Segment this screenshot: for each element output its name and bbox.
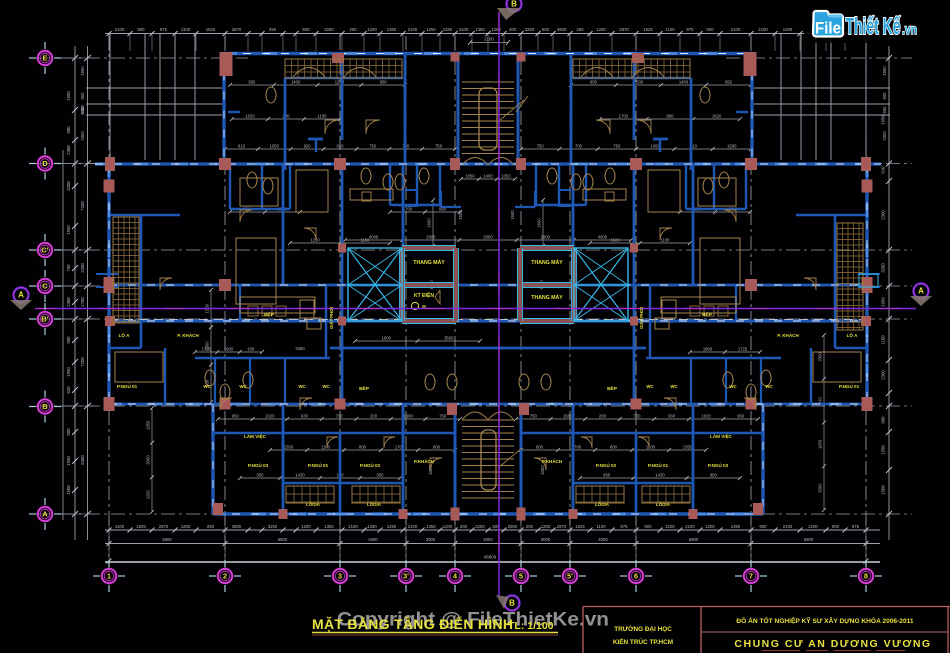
svg-text:800: 800 [359, 445, 367, 450]
svg-text:6800: 6800 [278, 537, 288, 542]
svg-text:200: 200 [599, 414, 607, 419]
svg-text:2800: 2800 [232, 524, 242, 529]
svg-text:LÔGIA: LÔGIA [367, 502, 382, 507]
svg-text:P.NGỦ 02: P.NGỦ 02 [596, 462, 617, 468]
svg-text:920: 920 [304, 144, 312, 149]
svg-text:LÔ A: LÔ A [847, 331, 858, 338]
svg-text:2870: 2870 [619, 27, 629, 32]
svg-text:2100: 2100 [408, 27, 418, 32]
svg-text:1950: 1950 [881, 115, 886, 125]
svg-text:1950: 1950 [66, 456, 71, 466]
svg-text:WC: WC [322, 384, 330, 389]
svg-text:1020: 1020 [265, 414, 275, 419]
svg-text:900: 900 [644, 524, 652, 529]
svg-text:3250: 3250 [525, 27, 535, 32]
svg-text:750: 750 [66, 264, 71, 272]
svg-text:3200: 3200 [881, 263, 886, 273]
svg-text:1350: 1350 [284, 445, 294, 450]
svg-text:1100: 1100 [660, 238, 670, 243]
svg-text:Thiết Kế: Thiết Kế [846, 13, 901, 39]
svg-text:3300: 3300 [540, 465, 545, 475]
svg-text:3250: 3250 [324, 27, 334, 32]
svg-text:3200: 3200 [66, 181, 71, 191]
svg-text:1400: 1400 [679, 80, 689, 85]
svg-text:1950: 1950 [66, 367, 71, 377]
svg-text:1100: 1100 [321, 445, 331, 450]
svg-text:950: 950 [603, 473, 611, 478]
svg-text:LÀM VIỆC: LÀM VIỆC [710, 432, 733, 439]
svg-text:1500: 1500 [727, 144, 737, 149]
svg-text:1950: 1950 [80, 66, 85, 76]
svg-text:2100: 2100 [459, 27, 469, 32]
svg-text:LÔGIA: LÔGIA [306, 502, 321, 507]
svg-text:2100: 2100 [665, 524, 675, 529]
svg-text:GIẶT PHƠI: GIẶT PHƠI [639, 307, 644, 329]
svg-text:950: 950 [232, 414, 240, 419]
svg-text:1620: 1620 [245, 114, 255, 119]
svg-text:1200: 1200 [705, 524, 715, 529]
svg-text:1100: 1100 [181, 27, 191, 32]
svg-text:1500: 1500 [881, 485, 886, 495]
svg-text:1430: 1430 [295, 473, 305, 478]
svg-text:KT ĐIỆN: KT ĐIỆN [414, 291, 434, 299]
svg-text:900: 900 [66, 126, 71, 134]
svg-text:1625: 1625 [575, 524, 585, 529]
svg-text:2100: 2100 [783, 524, 793, 529]
svg-text:WC: WC [298, 384, 306, 389]
svg-text:610: 610 [337, 144, 345, 149]
svg-text:B': B' [41, 315, 48, 324]
svg-text:1200: 1200 [596, 27, 606, 32]
svg-text:WC: WC [765, 384, 773, 389]
svg-text:1350: 1350 [683, 445, 693, 450]
svg-text:THANG MÁY: THANG MÁY [531, 294, 563, 301]
svg-text:6800: 6800 [804, 537, 814, 542]
svg-text:1350: 1350 [426, 524, 436, 529]
svg-text:2300: 2300 [882, 131, 887, 141]
svg-text:2870: 2870 [232, 27, 242, 32]
svg-text:1250: 1250 [310, 238, 320, 243]
svg-text:WC: WC [203, 384, 211, 389]
svg-text:4000: 4000 [483, 537, 493, 542]
svg-text:1625: 1625 [136, 524, 146, 529]
svg-text:WC: WC [670, 384, 678, 389]
svg-text:.vn: .vn [902, 21, 917, 37]
svg-text:750: 750 [537, 144, 545, 149]
svg-text:1050: 1050 [465, 174, 475, 179]
svg-text:950: 950 [590, 80, 598, 85]
svg-text:P.KHÁCH: P.KHÁCH [542, 458, 563, 464]
svg-text:900: 900 [80, 92, 85, 100]
svg-text:A: A [42, 510, 48, 519]
svg-text:700: 700 [336, 414, 344, 419]
svg-text:930: 930 [301, 414, 309, 419]
svg-text:2100: 2100 [115, 27, 125, 32]
svg-text:900: 900 [66, 336, 71, 344]
svg-text:1250: 1250 [426, 27, 436, 32]
svg-text:800: 800 [536, 445, 544, 450]
svg-text:P.NGỦ 01: P.NGỦ 01 [308, 462, 329, 468]
svg-text:3250: 3250 [268, 524, 278, 529]
svg-text:1950: 1950 [146, 420, 151, 430]
svg-text:P.NGỦ 01: P.NGỦ 01 [648, 462, 669, 468]
svg-text:P.NGỦ 02: P.NGỦ 02 [360, 462, 381, 468]
svg-text:1150: 1150 [146, 489, 151, 499]
svg-text:WC: WC [646, 384, 654, 389]
svg-text:B: B [511, 0, 517, 9]
svg-text:2100: 2100 [731, 27, 741, 32]
svg-text:3300: 3300 [818, 483, 823, 493]
svg-text:BẾP: BẾP [607, 385, 618, 392]
svg-text:1350: 1350 [731, 524, 741, 529]
svg-text:LÀM VIỆC: LÀM VIỆC [244, 432, 267, 439]
svg-text:WC: WC [239, 384, 247, 389]
svg-text:6400: 6400 [80, 455, 85, 465]
svg-text:WC: WC [729, 384, 737, 389]
svg-text:1625: 1625 [206, 27, 216, 32]
svg-text:1000: 1000 [382, 336, 392, 341]
svg-text:6800: 6800 [162, 537, 172, 542]
svg-text:100: 100 [247, 347, 255, 352]
svg-text:1950: 1950 [818, 439, 823, 449]
svg-text:3': 3' [403, 572, 409, 581]
svg-text:900: 900 [881, 416, 886, 424]
svg-text:1100: 1100 [115, 524, 125, 529]
svg-text:D: D [42, 159, 48, 168]
svg-text:A: A [18, 291, 24, 300]
svg-text:910: 910 [881, 166, 886, 174]
svg-text:1950: 1950 [66, 91, 71, 101]
svg-text:1620: 1620 [712, 114, 722, 119]
svg-text:1200: 1200 [783, 27, 793, 32]
svg-text:1250: 1250 [387, 524, 397, 529]
svg-text:750: 750 [369, 144, 377, 149]
svg-text:2300: 2300 [881, 370, 886, 380]
svg-text:975: 975 [160, 27, 168, 32]
svg-text:1600: 1600 [458, 210, 463, 220]
svg-text:BẾP: BẾP [702, 311, 713, 318]
svg-text:CHUNG CƯ AN DƯƠNG VƯƠNG: CHUNG CƯ AN DƯƠNG VƯƠNG [734, 638, 931, 650]
svg-text:500: 500 [542, 27, 550, 32]
svg-text:800: 800 [610, 445, 618, 450]
svg-text:2: 2 [223, 572, 227, 581]
svg-text:6400: 6400 [80, 105, 85, 115]
svg-text:3450: 3450 [295, 346, 305, 351]
svg-text:500: 500 [302, 27, 310, 32]
svg-text:900: 900 [137, 27, 145, 32]
svg-text:1900: 1900 [703, 347, 713, 352]
svg-text:910: 910 [238, 144, 246, 149]
svg-text:MẶT BẰNG TẦNG ĐIỂN HÌNH: MẶT BẰNG TẦNG ĐIỂN HÌNH [312, 615, 513, 632]
svg-text:975: 975 [852, 524, 860, 529]
svg-text:4000: 4000 [369, 235, 379, 240]
svg-text:200: 200 [349, 27, 357, 32]
svg-text:1100: 1100 [596, 524, 606, 529]
svg-text:975: 975 [620, 524, 628, 529]
svg-text:4000: 4000 [598, 235, 608, 240]
svg-text:1050: 1050 [501, 174, 511, 179]
svg-text:P. KHÁCH: P. KHÁCH [777, 332, 799, 338]
svg-text:2100: 2100 [484, 37, 494, 42]
svg-text:2100: 2100 [348, 524, 358, 529]
svg-text:1625: 1625 [643, 27, 653, 32]
svg-text:900: 900 [706, 27, 714, 32]
svg-text:200: 200 [370, 414, 378, 419]
svg-text:LÔGIA: LÔGIA [595, 502, 610, 507]
svg-text:P.NGỦ 03: P.NGỦ 03 [248, 462, 269, 468]
svg-text:1050: 1050 [270, 144, 280, 149]
svg-text:800: 800 [433, 445, 441, 450]
svg-text:4000: 4000 [598, 537, 608, 542]
svg-text:1350: 1350 [475, 27, 485, 32]
svg-text:800: 800 [667, 114, 675, 119]
svg-text:5: 5 [519, 572, 523, 581]
svg-text:P.KHÁCH: P.KHÁCH [414, 458, 435, 464]
svg-text:2100: 2100 [408, 524, 418, 529]
svg-text:750: 750 [530, 414, 538, 419]
svg-text:C': C' [41, 246, 48, 255]
svg-text:1100: 1100 [317, 114, 327, 119]
svg-text:975: 975 [686, 27, 694, 32]
svg-text:LÔ A: LÔ A [119, 331, 130, 338]
svg-text:File: File [815, 19, 841, 38]
svg-text:1350: 1350 [387, 27, 397, 32]
svg-text:250: 250 [526, 524, 534, 529]
svg-text:2100: 2100 [685, 524, 695, 529]
svg-text:1250: 1250 [443, 27, 453, 32]
svg-text:2000: 2000 [483, 235, 493, 240]
svg-text:1250: 1250 [367, 524, 377, 529]
svg-text:1100: 1100 [646, 445, 656, 450]
svg-text:2800: 2800 [426, 235, 436, 240]
svg-text:5': 5' [567, 572, 573, 581]
svg-text:6800: 6800 [689, 537, 699, 542]
svg-text:E: E [42, 54, 47, 63]
svg-text:BẾP: BẾP [359, 385, 370, 392]
svg-text:C: C [42, 282, 48, 291]
svg-text:8: 8 [864, 572, 868, 581]
svg-text:650: 650 [882, 106, 887, 114]
svg-text:1200: 1200 [491, 27, 501, 32]
svg-text:3000: 3000 [541, 537, 551, 542]
svg-text:2100: 2100 [808, 524, 818, 529]
svg-text:950: 950 [257, 473, 265, 478]
svg-text:900: 900 [882, 92, 887, 100]
svg-text:1020: 1020 [701, 414, 711, 419]
svg-text:1600: 1600 [427, 218, 432, 228]
svg-text:930: 930 [668, 414, 676, 419]
svg-text:1950: 1950 [66, 225, 71, 235]
svg-text:1900: 1900 [224, 347, 234, 352]
svg-text:THANG MÁY: THANG MÁY [413, 259, 445, 266]
svg-text:950: 950 [377, 473, 385, 478]
svg-text:2300: 2300 [881, 210, 886, 220]
svg-text:7200: 7200 [80, 357, 85, 367]
svg-text:2200: 2200 [80, 263, 85, 273]
svg-text:750: 750 [439, 414, 447, 419]
svg-text:1200: 1200 [301, 524, 311, 529]
svg-text:700: 700 [634, 414, 642, 419]
svg-text:950: 950 [737, 414, 745, 419]
svg-text:3000: 3000 [146, 455, 151, 465]
svg-text:950: 950 [380, 80, 388, 85]
svg-text:1430: 1430 [655, 473, 665, 478]
svg-text:2100: 2100 [758, 27, 768, 32]
svg-text:B: B [42, 402, 48, 411]
svg-text:1950: 1950 [881, 297, 886, 307]
svg-text:1600: 1600 [537, 218, 542, 228]
svg-text:200: 200 [460, 524, 468, 529]
svg-text:1: 1 [107, 572, 111, 581]
svg-text:700: 700 [575, 144, 583, 149]
svg-text:GIẶT PHƠI: GIẶT PHƠI [329, 307, 334, 329]
svg-text:1200: 1200 [367, 27, 377, 32]
svg-text:1500: 1500 [66, 485, 71, 495]
svg-text:B: B [509, 599, 515, 608]
svg-text:2800: 2800 [508, 524, 518, 529]
svg-text:TRƯỜNG ĐẠI HỌC: TRƯỜNG ĐẠI HỌC [614, 624, 672, 633]
svg-text:1600: 1600 [403, 414, 413, 419]
svg-text:BẾP: BẾP [264, 311, 275, 318]
svg-text:TL: 1/100: TL: 1/100 [508, 620, 554, 632]
svg-text:3500: 3500 [444, 336, 454, 341]
svg-text:1350: 1350 [324, 524, 334, 529]
svg-text:46800: 46800 [484, 555, 497, 560]
svg-text:4000: 4000 [368, 537, 378, 542]
svg-text:2870: 2870 [557, 524, 567, 529]
svg-text:3250: 3250 [475, 524, 485, 529]
svg-text:200: 200 [509, 27, 517, 32]
svg-text:2300: 2300 [66, 145, 71, 155]
svg-text:750: 750 [435, 144, 443, 149]
svg-text:6: 6 [634, 572, 638, 581]
svg-text:1400: 1400 [483, 174, 493, 179]
svg-text:250: 250 [269, 27, 277, 32]
svg-text:7: 7 [749, 572, 753, 581]
svg-text:THANG MÁY: THANG MÁY [531, 259, 563, 266]
svg-text:A: A [918, 287, 924, 296]
svg-text:7200: 7200 [80, 201, 85, 211]
svg-text:2700: 2700 [80, 297, 85, 307]
svg-text:1725: 1725 [202, 347, 212, 352]
svg-text:P.NGỦ 01: P.NGỦ 01 [117, 383, 138, 389]
svg-text:950: 950 [710, 473, 718, 478]
svg-text:2800: 2800 [541, 235, 551, 240]
svg-text:1400: 1400 [291, 80, 301, 85]
svg-text:1200: 1200 [541, 524, 551, 529]
svg-text:1200: 1200 [443, 524, 453, 529]
svg-text:900: 900 [66, 428, 71, 436]
svg-text:LÔGIA: LÔGIA [656, 502, 671, 507]
svg-text:950: 950 [248, 80, 256, 85]
svg-text:P.NGỦ 01: P.NGỦ 01 [839, 383, 860, 389]
svg-text:2300: 2300 [80, 131, 85, 141]
svg-text:900: 900 [759, 524, 767, 529]
svg-text:1700: 1700 [619, 114, 629, 119]
svg-text:P. KHÁCH: P. KHÁCH [177, 332, 199, 338]
svg-text:1950: 1950 [882, 66, 887, 76]
svg-text:2800: 2800 [557, 27, 567, 32]
svg-text:1100: 1100 [665, 27, 675, 32]
svg-text:1950: 1950 [881, 445, 886, 455]
svg-text:950: 950 [725, 80, 733, 85]
svg-text:250: 250 [576, 27, 584, 32]
svg-text:P.NGỦ 03: P.NGỦ 03 [708, 462, 729, 468]
svg-text:2300: 2300 [66, 297, 71, 307]
svg-text:1725: 1725 [738, 347, 748, 352]
svg-text:3: 3 [338, 572, 342, 581]
svg-text:3000: 3000 [426, 537, 436, 542]
svg-text:250: 250 [207, 524, 215, 529]
svg-text:1100: 1100 [881, 335, 886, 345]
svg-text:1200: 1200 [181, 524, 191, 529]
svg-text:750: 750 [613, 144, 621, 149]
svg-text:900: 900 [832, 524, 840, 529]
svg-text:1600: 1600 [510, 210, 515, 220]
svg-text:2300: 2300 [818, 352, 823, 362]
svg-text:2870: 2870 [159, 524, 169, 529]
svg-text:620: 620 [66, 386, 71, 394]
